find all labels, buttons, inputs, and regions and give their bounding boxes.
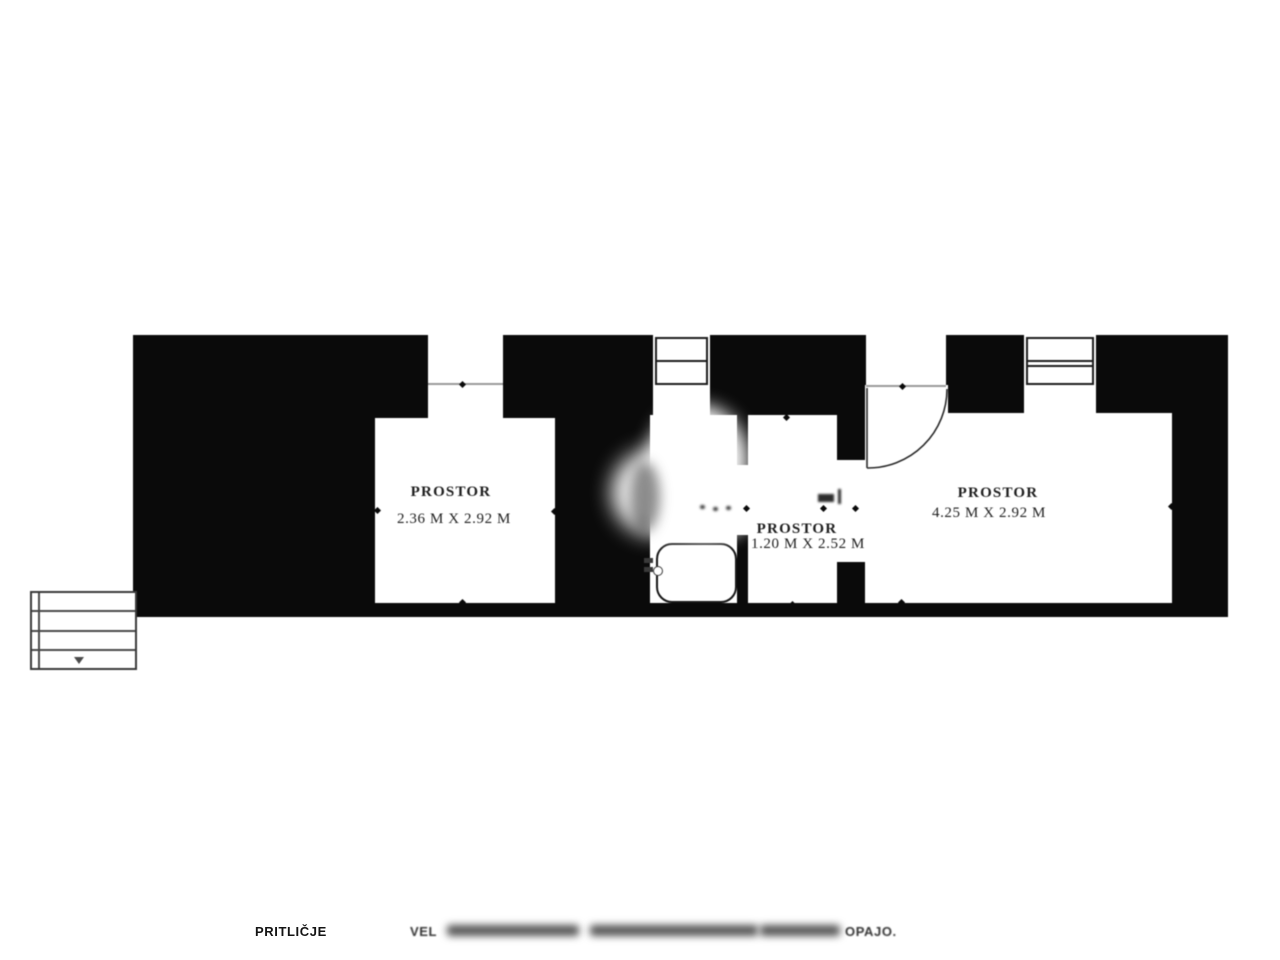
stairs-step [32,610,135,612]
room-left-entry-opening [428,335,503,419]
stairs-step [32,630,135,632]
room-left-label: PROSTOR [361,484,541,501]
room-middle-dimensions: 1.20 M X 2.52 M [718,536,898,553]
window-bar [657,360,706,362]
window-icon [655,337,708,385]
floor-plan-page: PROSTOR 2.36 M X 2.92 M PROSTOR 1.20 M X… [0,0,1280,960]
stairs-direction-arrow-icon [74,657,84,664]
floor-label: PRITLIČJE [255,924,327,939]
fixture-remnant-dot [726,506,731,510]
faucet-icon [644,558,653,563]
window-bar [1028,360,1092,362]
fixture-remnant-dot [713,507,718,511]
stairs-step [32,649,135,651]
fixture-remnant-dot [700,505,705,509]
redaction-smear [447,925,579,936]
redaction-smear [760,925,840,936]
window-icon [1026,337,1094,385]
blur-shadow-remnant [630,462,660,532]
door-swing-icon [860,380,960,480]
caption-start: VEL [410,924,437,939]
door-remnant-mark [838,489,841,504]
room-left-dimensions: 2.36 M X 2.92 M [364,511,544,528]
caption-end: OPAJO. [845,924,897,939]
floor-plan: PROSTOR 2.36 M X 2.92 M PROSTOR 1.20 M X… [0,0,1280,960]
drain-icon [653,566,663,576]
redaction-smear [590,925,758,936]
faucet-icon [644,567,653,572]
window-bar [1028,365,1092,367]
stairs-icon [30,591,137,670]
door-remnant-mark [818,494,834,502]
room-right-label: PROSTOR [908,485,1088,502]
room-right-dimensions: 4.25 M X 2.92 M [899,505,1079,522]
